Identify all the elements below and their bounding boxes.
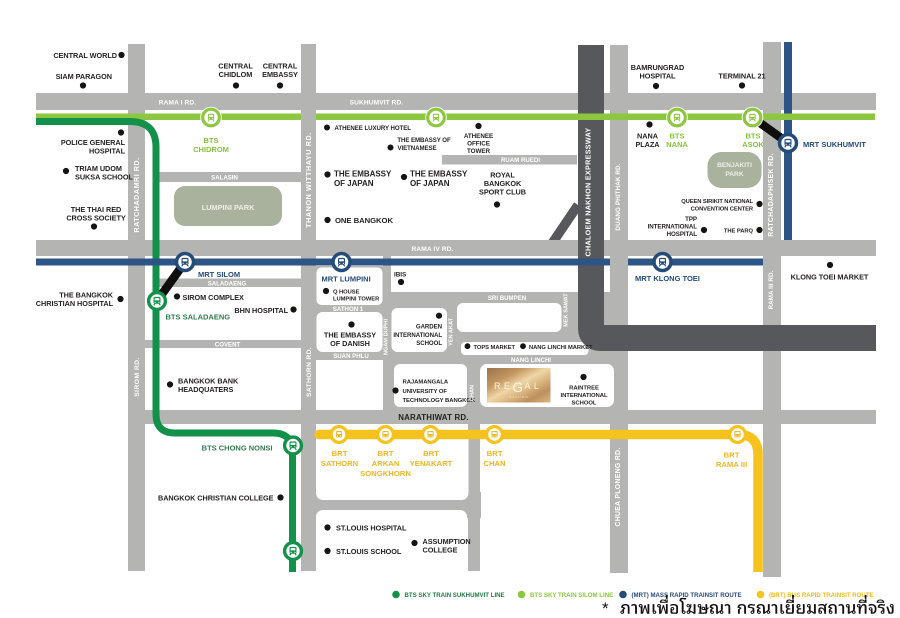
svg-text:CROSS SOCIETY: CROSS SOCIETY [66,214,126,223]
svg-text:TECHNOLOGY BANGKOK: TECHNOLOGY BANGKOK [403,398,476,404]
svg-text:SATHON 1: SATHON 1 [333,306,364,313]
svg-text:CONVENTION CENTER: CONVENTION CENTER [691,207,754,213]
svg-text:ATHENEE: ATHENEE [464,133,493,140]
svg-text:NANG LINCHI MARKET: NANG LINCHI MARKET [529,345,593,351]
svg-text:RATCHADAMRI RD.: RATCHADAMRI RD. [132,157,141,232]
svg-text:SATHON: SATHON [509,395,528,399]
svg-text:SIROM RD.: SIROM RD. [134,357,141,396]
svg-text:SRI BUMPEN: SRI BUMPEN [488,295,526,302]
svg-text:(MRT) MASS RAPID TRAINSIT ROU: (MRT) MASS RAPID TRAINSIT ROUTE [632,592,742,599]
svg-text:MEK SAWAT: MEK SAWAT [564,293,570,327]
svg-text:SUAN PHLU: SUAN PHLU [333,353,369,360]
svg-text:ST.LOUIS SCHOOL: ST.LOUIS SCHOOL [336,547,402,556]
svg-text:OF JAPAN: OF JAPAN [334,179,374,188]
svg-text:RAINTREE: RAINTREE [569,386,599,392]
svg-text:KLONG TOEI MARKET: KLONG TOEI MARKET [791,273,869,282]
svg-text:INTERNATIONAL: INTERNATIONAL [560,393,607,399]
svg-text:SATHORN RD.: SATHORN RD. [306,347,313,397]
svg-text:CHIDROM: CHIDROM [193,145,229,154]
svg-text:COVENT: COVENT [215,342,241,349]
svg-text:SALADAENG: SALADAENG [208,281,247,288]
svg-text:MRT LUMPINI: MRT LUMPINI [322,275,371,284]
svg-text:CHIDLOM: CHIDLOM [219,70,253,79]
svg-text:TOWER: TOWER [467,148,491,155]
svg-text:THANON WITTHAYU RD.: THANON WITTHAYU RD. [304,132,313,228]
svg-text:ST.LOUIS HOSPITAL: ST.LOUIS HOSPITAL [336,524,407,533]
svg-text:BTS CHONG NONSI: BTS CHONG NONSI [202,444,273,453]
svg-text:SUKHUMVIT RD.: SUKHUMVIT RD. [350,100,404,107]
svg-text:IBIS: IBIS [394,272,407,279]
svg-text:RAMA I RD.: RAMA I RD. [159,100,196,107]
svg-text:ONE BANGKOK: ONE BANGKOK [335,216,393,225]
svg-text:RAMA III RD.: RAMA III RD. [768,270,775,309]
svg-text:PLAZA: PLAZA [635,140,660,149]
svg-text:Q HOUSE: Q HOUSE [333,290,360,296]
svg-text:BTS: BTS [204,136,219,145]
svg-text:G: G [513,380,524,395]
svg-text:OF JAPAN: OF JAPAN [410,179,450,188]
svg-text:EMBASSY: EMBASSY [262,70,298,79]
svg-text:TPP: TPP [685,216,697,223]
svg-text:THE EMBASSY: THE EMBASSY [334,170,392,179]
svg-text:BANGKOK CHRISTIAN COLLEGE: BANGKOK CHRISTIAN COLLEGE [158,494,274,503]
svg-text:MRT KLONG TOEI: MRT KLONG TOEI [635,274,700,283]
svg-text:ATHENEE LUXURY HOTEL: ATHENEE LUXURY HOTEL [335,125,412,132]
svg-text:(BRT) BUS RAPID TRAINSIT ROUT: (BRT) BUS RAPID TRAINSIT ROUTE [769,592,874,599]
svg-text:CHALOEM NAKHON EXPRESSWAY: CHALOEM NAKHON EXPRESSWAY [584,127,593,256]
svg-text:ARKAN: ARKAN [372,459,400,468]
svg-text:RE: RE [494,381,513,391]
svg-text:MRT SUKHUMVIT: MRT SUKHUMVIT [803,140,866,149]
svg-text:OFFICE: OFFICE [467,141,490,148]
svg-text:YEN AKAT: YEN AKAT [449,317,455,346]
svg-text:INTERNATIONAL: INTERNATIONAL [648,224,698,231]
svg-text:VIETNAMESE: VIETNAMESE [397,145,436,152]
svg-text:LUMPINI TOWER: LUMPINI TOWER [333,297,380,303]
svg-text:SIAM PARAGON: SIAM PARAGON [56,72,112,81]
svg-text:RAMA IV RD.: RAMA IV RD. [412,246,454,253]
svg-text:SPORT CLUB: SPORT CLUB [479,188,526,197]
svg-text:DUANG PHITHAK RD.: DUANG PHITHAK RD. [615,163,622,230]
svg-text:COLLEGE: COLLEGE [423,546,458,555]
svg-text:THE PARQ: THE PARQ [724,229,754,235]
svg-text:RAMA III: RAMA III [716,460,747,469]
svg-text:SATHORN: SATHORN [321,459,359,468]
svg-text:BRT: BRT [487,449,503,458]
svg-text:GARDEN: GARDEN [416,324,442,331]
svg-text:CHRISTIAN HOSPITAL: CHRISTIAN HOSPITAL [36,299,114,308]
svg-text:QUEEN SIRIKIT NATIONAL: QUEEN SIRIKIT NATIONAL [681,199,753,205]
svg-text:BENJAKITI: BENJAKITI [717,162,752,169]
svg-text:SUKSA SCHOOL: SUKSA SCHOOL [75,173,134,182]
svg-text:SCHOOL: SCHOOL [416,340,442,347]
svg-text:HOSPITAL: HOSPITAL [89,147,126,156]
svg-text:NARATHIWAT RD.: NARATHIWAT RD. [398,413,468,422]
svg-text:UNIVERSITY OF: UNIVERSITY OF [403,389,448,395]
svg-text:MRT SILOM: MRT SILOM [198,270,240,279]
svg-text:SIROM COMPLEX: SIROM COMPLEX [183,293,245,302]
svg-text:HEADQUATERS: HEADQUATERS [178,385,233,394]
svg-text:THE EMBASSY OF: THE EMBASSY OF [397,137,451,144]
svg-text:BRT: BRT [378,449,394,458]
svg-text:CENTRAL WORLD: CENTRAL WORLD [53,51,117,60]
svg-text:NGAM DUPHI: NGAM DUPHI [384,319,390,355]
svg-text:BRT: BRT [724,451,740,460]
svg-text:SCHOOL: SCHOOL [572,401,597,407]
svg-text:BRT: BRT [332,449,348,458]
svg-text:*: * [602,599,609,618]
svg-text:INTERNATIONAL: INTERNATIONAL [393,332,442,339]
svg-text:AL: AL [525,381,543,391]
svg-text:NANA: NANA [666,140,688,149]
svg-text:BRT: BRT [423,449,439,458]
svg-text:OF DANISH: OF DANISH [330,339,370,348]
svg-text:LUMPINI PARK: LUMPINI PARK [202,203,255,212]
svg-text:RUAM RUEDI: RUAM RUEDI [501,157,540,164]
svg-text:CHAN: CHAN [483,459,506,468]
svg-text:HOSPITAL: HOSPITAL [667,231,698,238]
svg-text:RATCHADAPHISEK RD.: RATCHADAPHISEK RD. [768,153,775,236]
svg-text:RAJAMANGALA: RAJAMANGALA [403,380,449,386]
svg-text:SALASIN: SALASIN [211,175,238,182]
svg-text:HOSPITAL: HOSPITAL [640,72,677,81]
svg-text:CHUEA PLONENG RD.: CHUEA PLONENG RD. [615,447,622,526]
svg-text:TOPS MARKET: TOPS MARKET [474,345,516,351]
svg-text:BTS SKY TRAIN SILOM LINE: BTS SKY TRAIN SILOM LINE [530,592,613,599]
svg-text:NANG LINCHI: NANG LINCHI [511,357,551,364]
svg-text:YENAKART: YENAKART [410,459,453,468]
svg-text:ASOK: ASOK [742,140,764,149]
svg-text:THE EMBASSY: THE EMBASSY [410,170,468,179]
svg-text:TERMINAL 21: TERMINAL 21 [718,72,765,81]
svg-text:CHAN: CHAN [470,385,476,401]
svg-text:PARK: PARK [725,171,743,178]
svg-text:BTS SALADAENG: BTS SALADAENG [166,313,231,322]
svg-text:BHN HOSPITAL: BHN HOSPITAL [234,306,288,315]
svg-text:SONGKHORN: SONGKHORN [360,469,411,478]
svg-text:BTS SKY TRAIN SUKHUMVIT LINE: BTS SKY TRAIN SUKHUMVIT LINE [405,592,505,599]
